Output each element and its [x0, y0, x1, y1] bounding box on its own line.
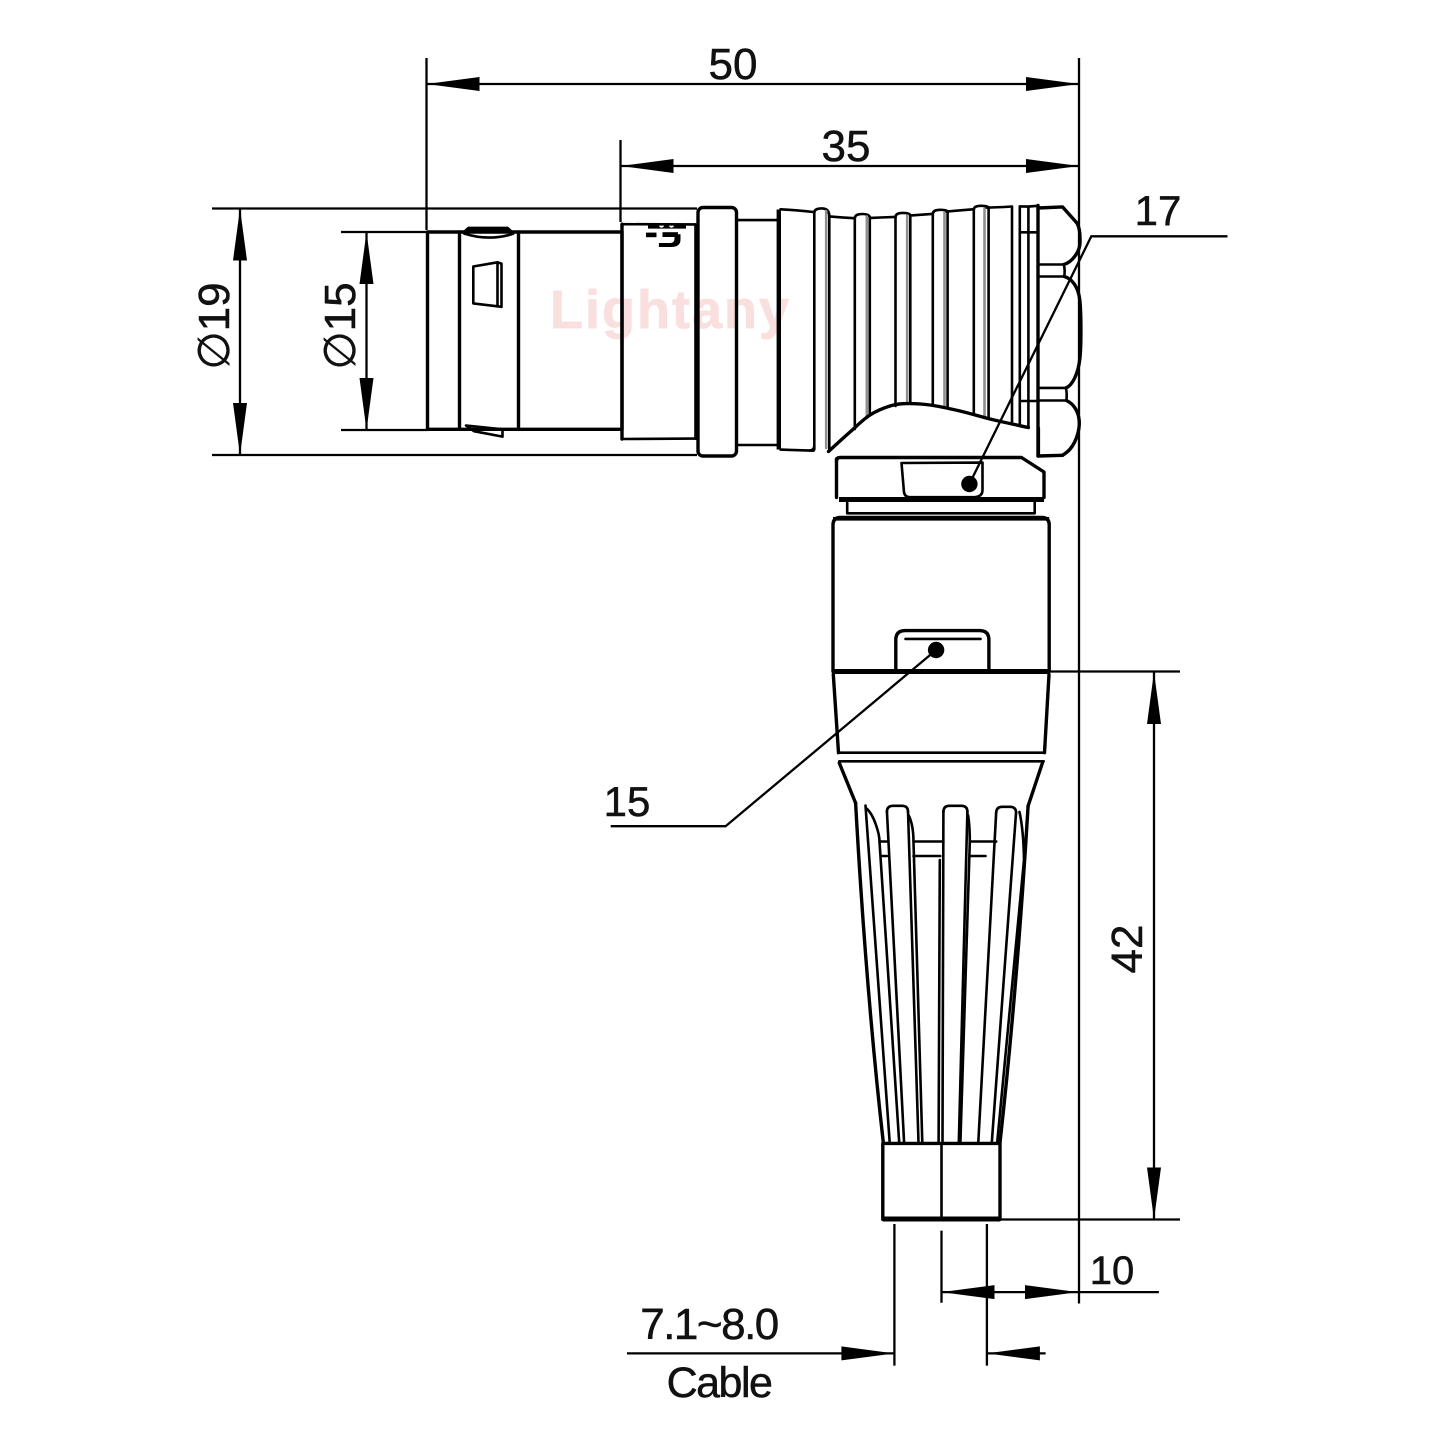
svg-text:∅15: ∅15 [316, 282, 365, 369]
svg-text:15: 15 [604, 778, 651, 825]
svg-text:42: 42 [1103, 925, 1152, 974]
svg-text:7.1~8.0: 7.1~8.0 [640, 1300, 778, 1349]
svg-text:Lightany: Lightany [550, 280, 791, 340]
svg-text:35: 35 [822, 122, 871, 171]
svg-text:Cable: Cable [667, 1359, 772, 1407]
svg-text:10: 10 [1090, 1249, 1135, 1293]
svg-text:17: 17 [1135, 187, 1182, 234]
svg-text:50: 50 [709, 40, 758, 89]
svg-text:∅19: ∅19 [190, 282, 239, 369]
